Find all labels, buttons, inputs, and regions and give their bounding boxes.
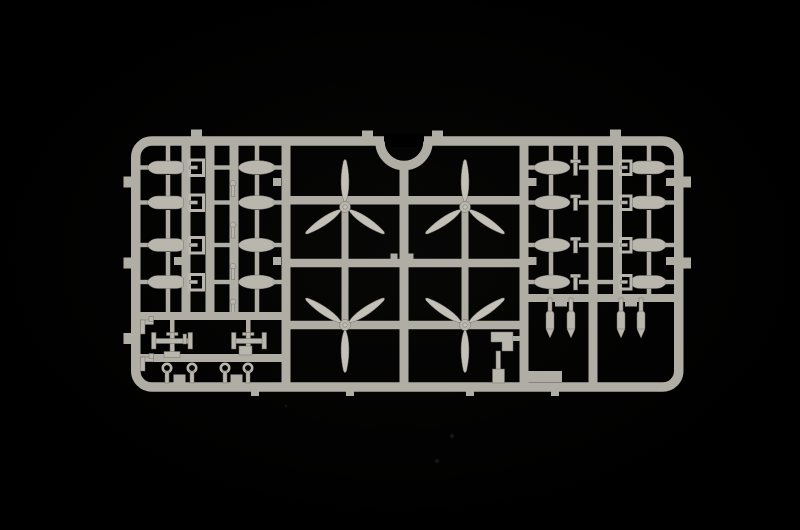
dust-speck: [435, 459, 439, 463]
bottom-pad: [522, 371, 562, 382]
notch-cut: [384, 134, 424, 148]
dust-speck: [285, 405, 288, 408]
sprue-photo: Photograph of a light grey injection-mou…: [0, 0, 800, 530]
dust-speck: [450, 434, 454, 438]
